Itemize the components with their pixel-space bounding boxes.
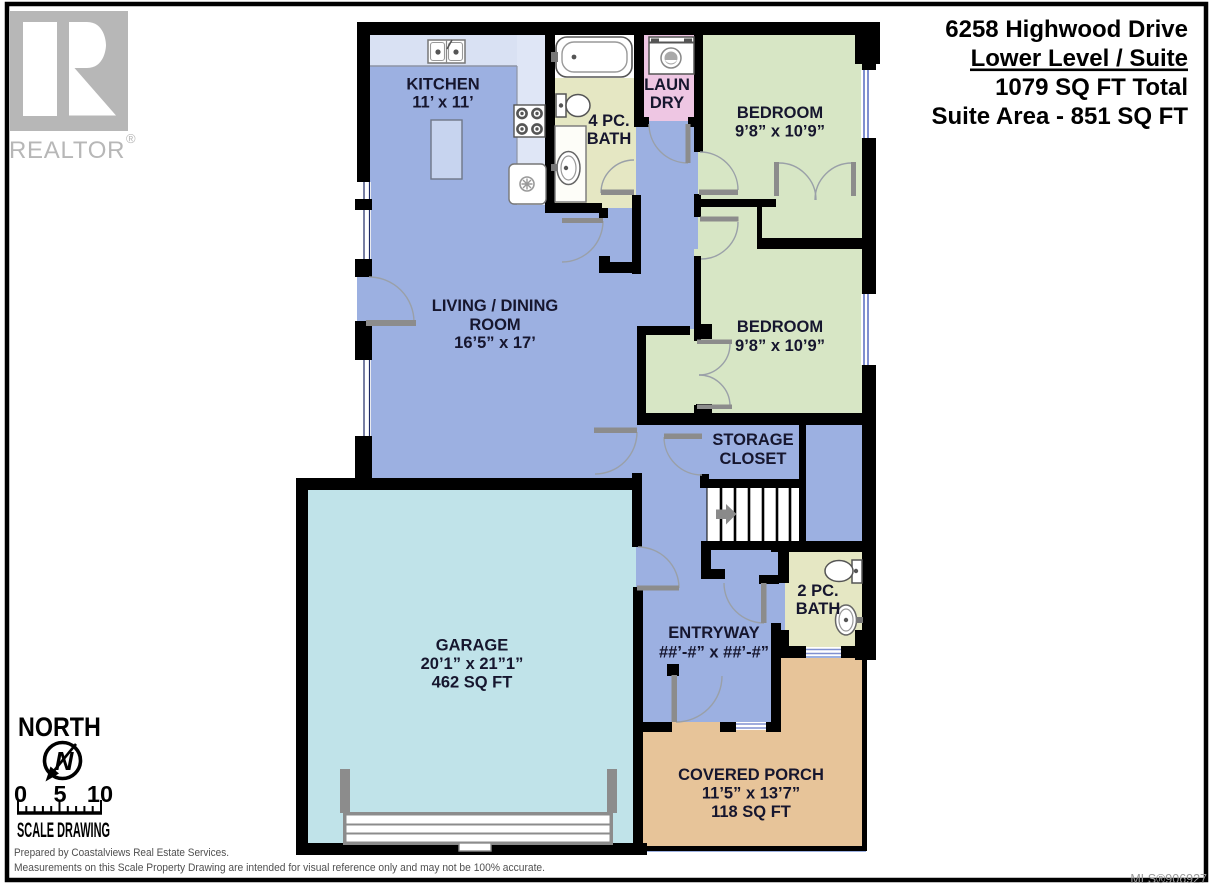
svg-text:®: ®	[126, 131, 136, 146]
svg-text:0: 0	[14, 781, 27, 807]
svg-text:STORAGE: STORAGE	[712, 431, 793, 449]
svg-text:6258 Highwood Drive: 6258 Highwood Drive	[945, 16, 1188, 43]
svg-text:BEDROOM: BEDROOM	[737, 104, 823, 122]
svg-text:ROOM: ROOM	[469, 316, 520, 334]
svg-text:9’8” x 10’9”: 9’8” x 10’9”	[735, 337, 825, 355]
svg-text:9’8” x 10’9”: 9’8” x 10’9”	[735, 123, 825, 141]
svg-text:MLS®906927: MLS®906927	[1130, 872, 1207, 886]
svg-text:ENTRYWAY: ENTRYWAY	[668, 624, 759, 642]
svg-text:Lower Level / Suite: Lower Level / Suite	[971, 45, 1188, 72]
svg-text:Measurements on this Scale Pro: Measurements on this Scale Property Draw…	[14, 862, 545, 874]
svg-text:2 PC.: 2 PC.	[797, 582, 838, 600]
svg-text:KITCHEN: KITCHEN	[406, 76, 479, 94]
svg-text:COVERED PORCH: COVERED PORCH	[678, 766, 824, 784]
svg-text:4 PC.: 4 PC.	[588, 112, 629, 130]
svg-text:NORTH: NORTH	[18, 713, 101, 743]
svg-text:118 SQ FT: 118 SQ FT	[711, 803, 791, 821]
svg-text:BEDROOM: BEDROOM	[737, 318, 823, 336]
svg-text:LIVING / DINING: LIVING / DINING	[432, 297, 559, 315]
svg-text:Prepared by Coastalviews Real: Prepared by Coastalviews Real Estate Ser…	[14, 847, 229, 859]
svg-text:CLOSET: CLOSET	[720, 450, 787, 468]
svg-text:LAUN: LAUN	[644, 76, 690, 94]
svg-text:11’ x 11’: 11’ x 11’	[412, 94, 474, 112]
svg-text:462 SQ FT: 462 SQ FT	[432, 674, 513, 692]
svg-text:##’-#” x ##’-#”: ##’-#” x ##’-#”	[659, 644, 769, 662]
svg-text:1079 SQ FT Total: 1079 SQ FT Total	[995, 74, 1188, 101]
svg-text:20’1” x 21”1”: 20’1” x 21”1”	[421, 655, 524, 673]
svg-text:REALTOR: REALTOR	[9, 137, 126, 164]
svg-text:BATH: BATH	[796, 600, 841, 618]
svg-text:16’5” x 17’: 16’5” x 17’	[454, 334, 536, 352]
svg-text:SCALE DRAWING: SCALE DRAWING	[17, 818, 110, 842]
svg-text:11’5” x 13’7”: 11’5” x 13’7”	[702, 785, 800, 803]
svg-text:GARAGE: GARAGE	[436, 637, 508, 655]
svg-text:Suite Area - 851 SQ FT: Suite Area - 851 SQ FT	[931, 103, 1188, 130]
svg-text:BATH: BATH	[587, 130, 632, 148]
svg-text:DRY: DRY	[650, 94, 684, 112]
